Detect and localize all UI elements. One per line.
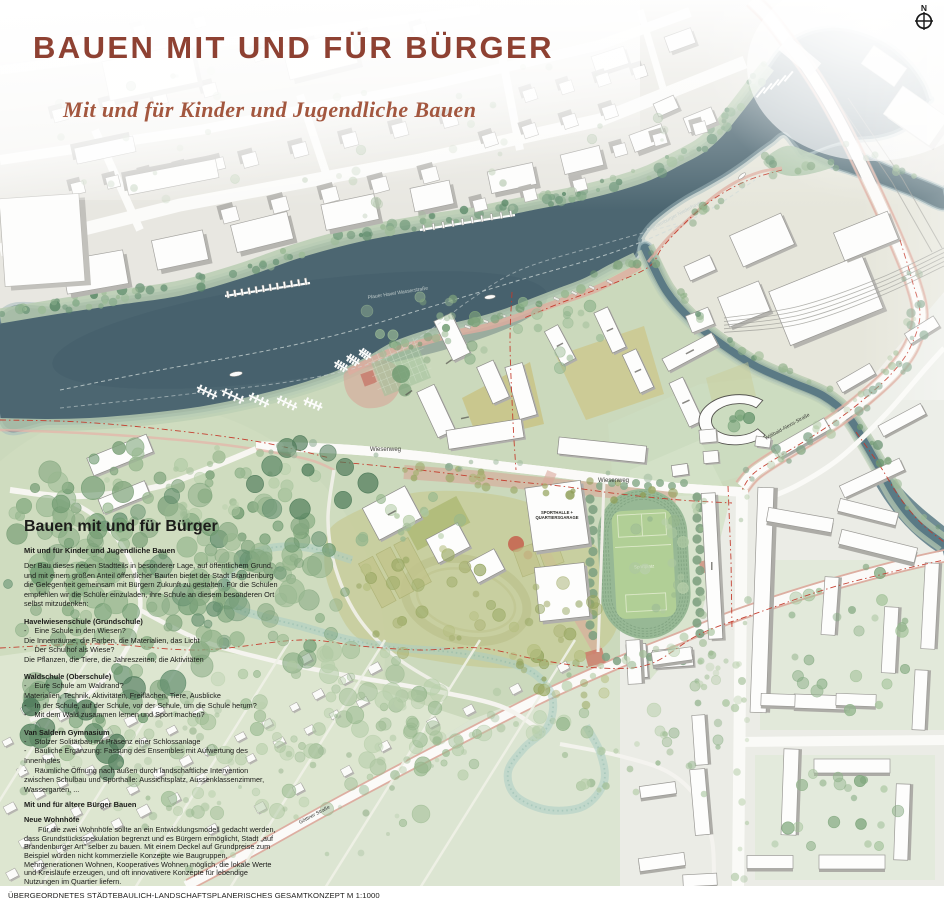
svg-text:N: N	[921, 3, 927, 13]
svg-text:QUARTIERSGARAGE: QUARTIERSGARAGE	[535, 515, 578, 520]
svg-text:Wiesenweg: Wiesenweg	[598, 478, 629, 484]
svg-text:Wiesenweg: Wiesenweg	[370, 447, 401, 453]
